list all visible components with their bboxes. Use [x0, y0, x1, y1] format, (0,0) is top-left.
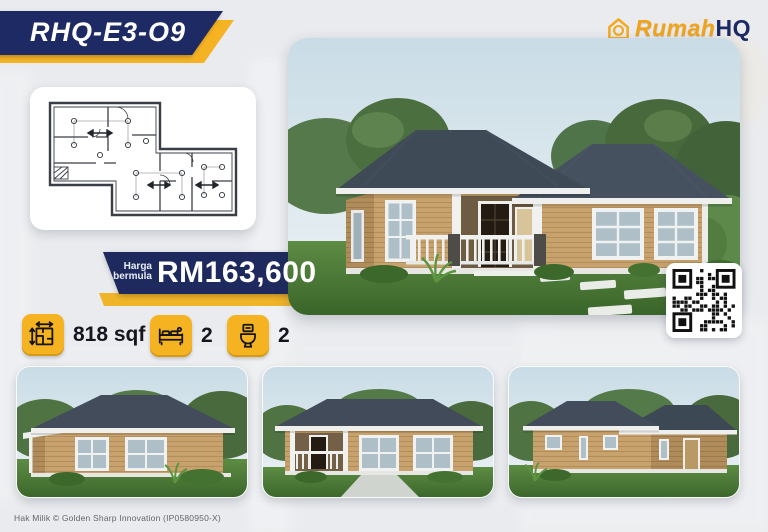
window [659, 439, 669, 460]
window [359, 435, 399, 471]
spec-bedrooms: 2 [150, 315, 213, 357]
toilet-icon [227, 315, 269, 357]
window [351, 210, 364, 262]
window [603, 435, 618, 450]
house-rear-view [508, 366, 740, 498]
specs-row: 818 sqf 2 [22, 314, 312, 358]
window [545, 435, 562, 450]
bed-icon [150, 315, 192, 357]
window [75, 437, 109, 471]
price-accent-stripe [99, 293, 303, 306]
spec-area: 818 sqf [22, 314, 145, 356]
qr-code [666, 263, 742, 338]
window [654, 208, 698, 260]
floor-plan-drawing [36, 93, 250, 224]
house-front-view [262, 366, 494, 498]
price-label: Harga bermula [104, 262, 152, 282]
fan-symbol [196, 182, 218, 188]
window [125, 437, 167, 471]
back-door [683, 438, 700, 469]
floor-area-icon [22, 314, 64, 356]
window [592, 208, 644, 260]
flyer-canvas: RHQ-E3-O9 RumahHQ [0, 0, 768, 532]
window [579, 436, 588, 460]
house-side-view [16, 366, 248, 498]
spec-bathrooms: 2 [227, 315, 290, 357]
copyright-text: Hak Milik © Golden Sharp Innovation (IP0… [14, 513, 221, 523]
floor-plan-card [30, 87, 256, 230]
window [413, 435, 453, 471]
model-code-label: RHQ-E3-O9 [18, 17, 198, 48]
price-value: RM163,600 [157, 256, 317, 290]
bathrooms-count: 2 [278, 324, 290, 348]
bedrooms-count: 2 [201, 324, 213, 348]
fan-symbol [148, 182, 170, 188]
area-value: 818 sqf [73, 323, 145, 347]
